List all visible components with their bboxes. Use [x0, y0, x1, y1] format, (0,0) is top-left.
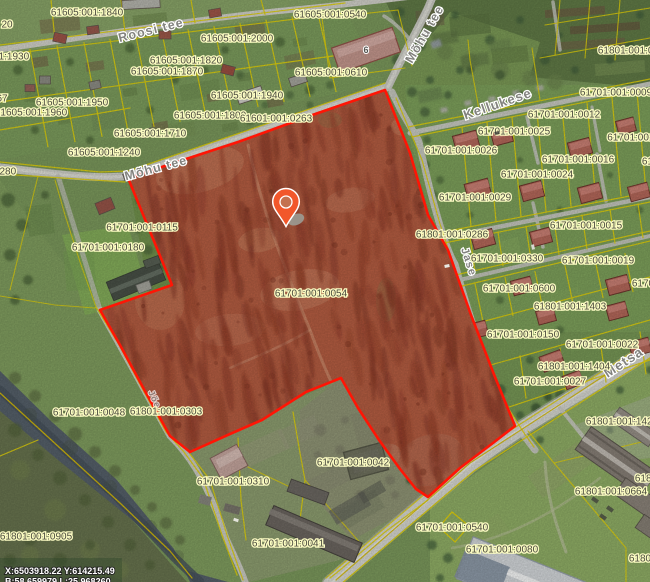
svg-text:X:6503918.22 Y:614215.49: X:6503918.22 Y:614215.49 — [5, 566, 115, 576]
svg-text:6: 6 — [363, 45, 368, 55]
svg-text:61605:001:0610: 61605:001:0610 — [295, 68, 368, 79]
svg-text:61701:001:0180: 61701:001:0180 — [72, 243, 145, 254]
svg-text:61701:001:0027: 61701:001:0027 — [514, 377, 587, 388]
svg-text:61605:001:2000: 61605:001:2000 — [201, 34, 274, 45]
svg-text:61701:001:0026: 61701:001:0026 — [425, 146, 498, 157]
svg-text:61801:001:1403: 61801:001:1403 — [534, 302, 607, 313]
svg-text:61701:001:0115: 61701:001:0115 — [106, 223, 178, 234]
svg-text:61701:001:0310: 61701:001:0310 — [197, 477, 270, 488]
svg-text:67: 67 — [0, 94, 8, 105]
svg-text:61801:001:0280: 61801:001:0280 — [0, 167, 17, 178]
svg-text:61701:001:0080: 61701:001:0080 — [466, 545, 539, 556]
svg-text:20: 20 — [1, 20, 13, 31]
svg-text:61605:001:1840: 61605:001:1840 — [51, 8, 124, 19]
svg-text:61605:001:1710: 61605:001:1710 — [114, 129, 187, 140]
svg-text:61605:001:1800: 61605:001:1800 — [174, 111, 247, 122]
svg-text:61701:001:0017: 61701:001:0017 — [642, 157, 650, 168]
svg-text:61801:001:1404: 61801:001:1404 — [538, 362, 611, 373]
svg-text:61701:001:0016: 61701:001:0016 — [542, 155, 615, 166]
svg-text:61605:001:0540: 61605:001:0540 — [294, 10, 367, 21]
svg-text:61605:001:1870: 61605:001:1870 — [131, 67, 204, 78]
svg-text:B:58.659979 L:25.968260: B:58.659979 L:25.968260 — [5, 577, 111, 582]
svg-text:61701:001:0150: 61701:001:0150 — [487, 330, 560, 341]
svg-text:61701:001:0014: 61701:001:0014 — [632, 279, 650, 290]
svg-text:61701:001:0012: 61701:001:0012 — [528, 110, 601, 121]
svg-text:61801:001:0905: 61801:001:0905 — [0, 532, 73, 543]
svg-text:61601:001:0263: 61601:001:0263 — [240, 114, 313, 125]
svg-text:61701:001:0024: 61701:001:0024 — [501, 170, 574, 181]
svg-text:61701:001:0009: 61701:001:0009 — [580, 88, 650, 99]
svg-text:61701:001:0054: 61701:001:0054 — [275, 289, 348, 300]
svg-text:61801:001:0664: 61801:001:0664 — [575, 487, 648, 498]
svg-text:61701:001:0330: 61701:001:0330 — [471, 254, 544, 265]
svg-text:61605:001:1930: 61605:001:1930 — [0, 52, 30, 63]
svg-text:61701:001:0029: 61701:001:0029 — [439, 193, 512, 204]
svg-text:61701:001:0041: 61701:001:0041 — [252, 539, 325, 550]
svg-text:61801:001:1420: 61801:001:1420 — [586, 417, 650, 428]
svg-text:61605:001:1940: 61605:001:1940 — [211, 91, 284, 102]
svg-text:61801:001:0286: 61801:001:0286 — [416, 230, 489, 241]
svg-text:61701:001:0540: 61701:001:0540 — [416, 523, 489, 534]
svg-text:61701:001:0042: 61701:001:0042 — [317, 458, 390, 469]
svg-text:61801:001:0303: 61801:001:0303 — [130, 407, 203, 418]
svg-text:61801:001:0668: 61801:001:0668 — [635, 474, 650, 485]
svg-text:61801:001:0610: 61801:001:0610 — [629, 554, 650, 565]
svg-text:61701:001:0600: 61701:001:0600 — [483, 284, 556, 295]
svg-text:61701:001:0048: 61701:001:0048 — [53, 408, 126, 419]
svg-text:61605:001:1240: 61605:001:1240 — [68, 148, 141, 159]
svg-text:61605:001:1960: 61605:001:1960 — [0, 108, 68, 119]
svg-text:61801:001:0164: 61801:001:0164 — [598, 46, 650, 57]
svg-text:61701:001:0011: 61701:001:0011 — [607, 133, 650, 144]
svg-text:61701:001:0019: 61701:001:0019 — [562, 256, 635, 267]
svg-text:61701:001:0015: 61701:001:0015 — [550, 221, 623, 232]
svg-text:61701:001:0022: 61701:001:0022 — [566, 340, 639, 351]
svg-text:61605:001:1820: 61605:001:1820 — [150, 56, 223, 67]
svg-text:61701:001:0025: 61701:001:0025 — [478, 127, 551, 138]
